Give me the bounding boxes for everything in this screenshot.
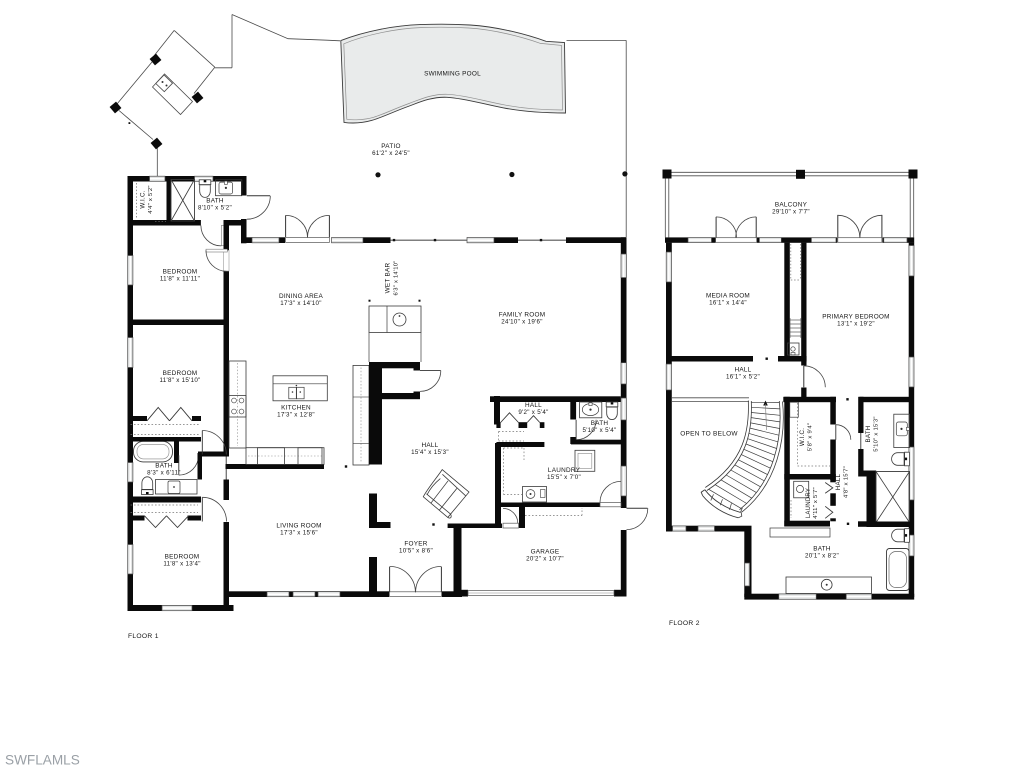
- svg-text:29'10" x 7'7": 29'10" x 7'7": [772, 208, 810, 215]
- svg-text:8'3" x 6'11": 8'3" x 6'11": [147, 469, 181, 476]
- svg-text:17'3" x 14'10": 17'3" x 14'10": [280, 300, 322, 307]
- svg-text:17'3" x 15'6": 17'3" x 15'6": [280, 529, 318, 536]
- svg-text:20'2" x 10'7": 20'2" x 10'7": [526, 555, 564, 562]
- svg-text:SWIMMING POOL: SWIMMING POOL: [424, 71, 481, 78]
- svg-text:6'3" x 14'10": 6'3" x 14'10": [393, 260, 399, 295]
- svg-text:61'2" x 24'5": 61'2" x 24'5": [372, 150, 410, 157]
- svg-text:SWFLAMLS: SWFLAMLS: [5, 753, 80, 768]
- svg-text:4'4" x 5'2": 4'4" x 5'2": [148, 185, 154, 214]
- svg-text:LAUNDRY: LAUNDRY: [806, 488, 812, 518]
- svg-text:11'8" x 13'4": 11'8" x 13'4": [163, 560, 200, 567]
- svg-text:16'1" x 14'4": 16'1" x 14'4": [709, 299, 747, 306]
- svg-text:13'1" x 19'2": 13'1" x 19'2": [837, 320, 875, 327]
- svg-text:11'8" x 15'10": 11'8" x 15'10": [159, 377, 200, 384]
- svg-text:4'11" x 5'7": 4'11" x 5'7": [813, 487, 819, 519]
- svg-text:WET BAR: WET BAR: [385, 262, 392, 293]
- svg-text:9'2" x 5'4": 9'2" x 5'4": [518, 409, 548, 416]
- svg-text:16'1" x 5'2": 16'1" x 5'2": [726, 373, 760, 380]
- svg-text:15'5" x 7'0": 15'5" x 7'0": [547, 474, 581, 481]
- svg-text:8'10" x 5'2": 8'10" x 5'2": [198, 204, 232, 211]
- svg-text:5'10" x 5'4": 5'10" x 5'4": [582, 427, 616, 434]
- svg-text:5'10" x 15'3": 5'10" x 15'3": [873, 416, 879, 452]
- svg-text:11'8" x 11'11": 11'8" x 11'11": [160, 275, 200, 282]
- svg-text:17'3" x 12'8": 17'3" x 12'8": [277, 411, 315, 418]
- svg-text:4'8" x 15'7": 4'8" x 15'7": [843, 466, 849, 498]
- svg-text:15'4" x 15'3": 15'4" x 15'3": [411, 449, 449, 456]
- svg-text:20'1" x 8'2": 20'1" x 8'2": [805, 552, 839, 559]
- svg-text:BATH: BATH: [865, 425, 872, 442]
- svg-text:10'5" x 8'6": 10'5" x 8'6": [399, 547, 433, 554]
- svg-text:FLOOR 2: FLOOR 2: [669, 620, 700, 627]
- svg-text:HALL: HALL: [835, 473, 842, 490]
- svg-text:FLOOR 1: FLOOR 1: [128, 633, 159, 640]
- svg-text:W.I.C.: W.I.C.: [799, 428, 806, 446]
- svg-text:W.I.C.: W.I.C.: [140, 190, 147, 208]
- svg-text:5'8" x 9'4": 5'8" x 9'4": [808, 423, 814, 452]
- svg-text:OPEN TO BELOW: OPEN TO BELOW: [680, 431, 738, 438]
- svg-text:24'10" x 19'6": 24'10" x 19'6": [501, 318, 543, 325]
